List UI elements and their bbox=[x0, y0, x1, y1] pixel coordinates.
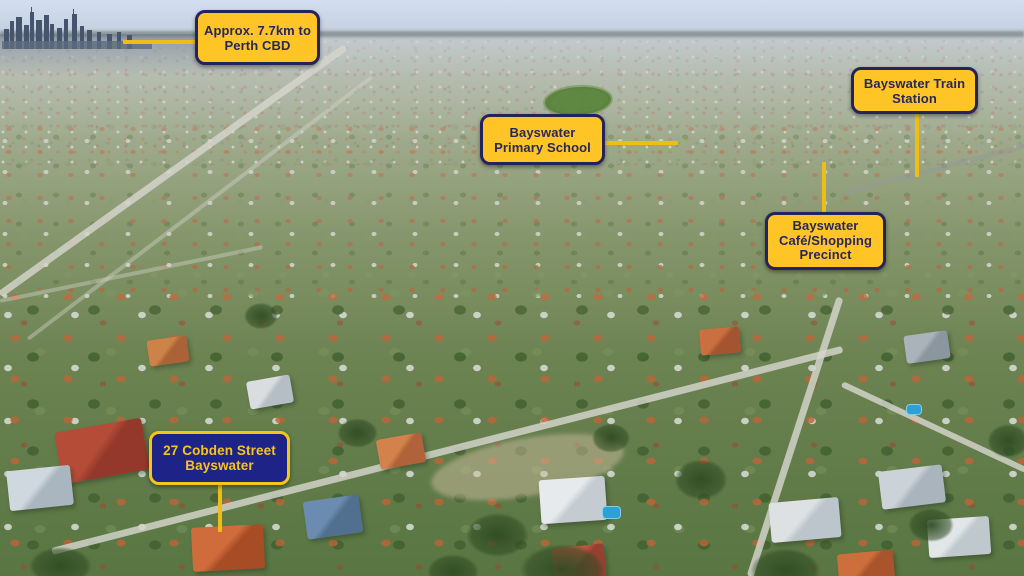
leader-line-perth-cbd bbox=[123, 40, 197, 44]
leader-line-primary-school bbox=[602, 141, 678, 145]
callout-line: Primary School bbox=[494, 140, 591, 155]
callout-line: 27 Cobden Street bbox=[163, 443, 276, 458]
callout-cafe-precinct: Bayswater Café/Shopping Precinct bbox=[765, 212, 886, 270]
tree-cluster bbox=[665, 452, 737, 507]
house-roof bbox=[699, 326, 741, 355]
house-roof bbox=[837, 550, 895, 576]
house-roof bbox=[303, 494, 364, 539]
callout-train-station: Bayswater Train Station bbox=[851, 67, 978, 114]
house-roof bbox=[6, 465, 74, 511]
callout-line: Perth CBD bbox=[225, 38, 291, 53]
tree-cluster bbox=[330, 413, 385, 453]
callout-property-address: 27 Cobden Street Bayswater bbox=[149, 431, 290, 485]
tree-cluster bbox=[238, 298, 284, 334]
house-roof bbox=[146, 335, 189, 366]
callout-line: Precinct bbox=[799, 248, 851, 263]
tree-cluster bbox=[585, 418, 637, 458]
callout-line: Bayswater Train bbox=[864, 76, 965, 91]
leader-line-property bbox=[218, 482, 222, 532]
leader-line-cafe-precinct bbox=[822, 162, 826, 214]
tree-cluster bbox=[900, 502, 962, 548]
callout-line: Bayswater bbox=[793, 219, 859, 234]
aerial-photo-scene: Approx. 7.7km to Perth CBD Bayswater Pri… bbox=[0, 0, 1024, 576]
callout-primary-school: Bayswater Primary School bbox=[480, 114, 605, 165]
callout-perth-cbd-distance: Approx. 7.7km to Perth CBD bbox=[195, 10, 320, 65]
house-roof bbox=[539, 476, 608, 524]
callout-line: Approx. 7.7km to bbox=[204, 23, 311, 38]
swimming-pool bbox=[906, 404, 922, 415]
subject-property-roof bbox=[191, 524, 265, 572]
callout-line: Station bbox=[892, 91, 937, 106]
callout-line: Bayswater bbox=[185, 458, 253, 473]
leader-line-train-station bbox=[915, 111, 919, 177]
house-roof bbox=[768, 497, 841, 543]
swimming-pool bbox=[602, 506, 621, 519]
callout-line: Bayswater bbox=[510, 125, 576, 140]
callout-line: Café/Shopping bbox=[779, 234, 872, 249]
